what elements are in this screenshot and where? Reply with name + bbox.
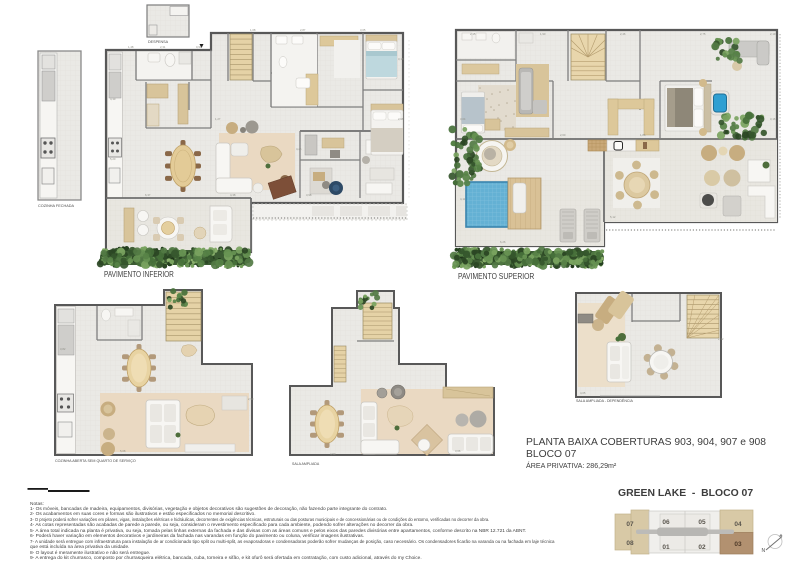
svg-text:2,12: 2,12	[718, 337, 724, 341]
svg-text:2,15: 2,15	[470, 32, 476, 36]
svg-text:5,08: 5,08	[120, 449, 126, 453]
svg-text:0,90: 0,90	[196, 45, 202, 49]
svg-text:07: 07	[626, 521, 634, 528]
svg-text:3,98: 3,98	[306, 193, 312, 197]
svg-text:1,90: 1,90	[540, 32, 546, 36]
svg-text:2,46: 2,46	[620, 32, 626, 36]
svg-text:2,19: 2,19	[770, 32, 776, 36]
svg-text:03: 03	[734, 541, 742, 548]
svg-text:3,82: 3,82	[60, 347, 66, 351]
svg-text:1,27: 1,27	[215, 117, 221, 121]
svg-text:4,38: 4,38	[230, 193, 236, 197]
svg-text:02: 02	[698, 544, 706, 551]
svg-text:3,66: 3,66	[455, 449, 461, 453]
svg-text:N: N	[762, 548, 766, 554]
svg-text:3,18: 3,18	[398, 57, 404, 61]
svg-text:08: 08	[626, 540, 634, 547]
svg-text:1,86: 1,86	[640, 133, 646, 137]
svg-text:05: 05	[698, 519, 706, 526]
svg-text:5,12: 5,12	[610, 215, 616, 219]
svg-text:06: 06	[662, 519, 670, 526]
svg-text:5,20: 5,20	[110, 157, 116, 161]
svg-text:4,05: 4,05	[580, 391, 586, 395]
svg-text:2,60: 2,60	[560, 133, 566, 137]
svg-text:2,75: 2,75	[700, 32, 706, 36]
svg-text:04: 04	[734, 521, 742, 528]
svg-text:4,50: 4,50	[330, 452, 336, 456]
svg-text:01: 01	[662, 544, 670, 551]
svg-text:3,16: 3,16	[770, 117, 776, 121]
svg-text:6,26: 6,26	[500, 240, 506, 244]
svg-text:2,96: 2,96	[398, 117, 404, 121]
svg-text:3,05: 3,05	[360, 28, 366, 32]
svg-text:4,39: 4,39	[110, 97, 116, 101]
svg-text:4,26: 4,26	[296, 147, 302, 151]
svg-text:2,31: 2,31	[160, 45, 166, 49]
svg-text:1,08: 1,08	[250, 28, 256, 32]
svg-text:2,90: 2,90	[248, 397, 254, 401]
svg-text:3,04: 3,04	[460, 117, 466, 121]
svg-text:2,87: 2,87	[300, 28, 306, 32]
svg-text:4,11: 4,11	[460, 197, 466, 201]
svg-text:6,37: 6,37	[145, 193, 151, 197]
svg-text:1,48: 1,48	[128, 45, 134, 49]
